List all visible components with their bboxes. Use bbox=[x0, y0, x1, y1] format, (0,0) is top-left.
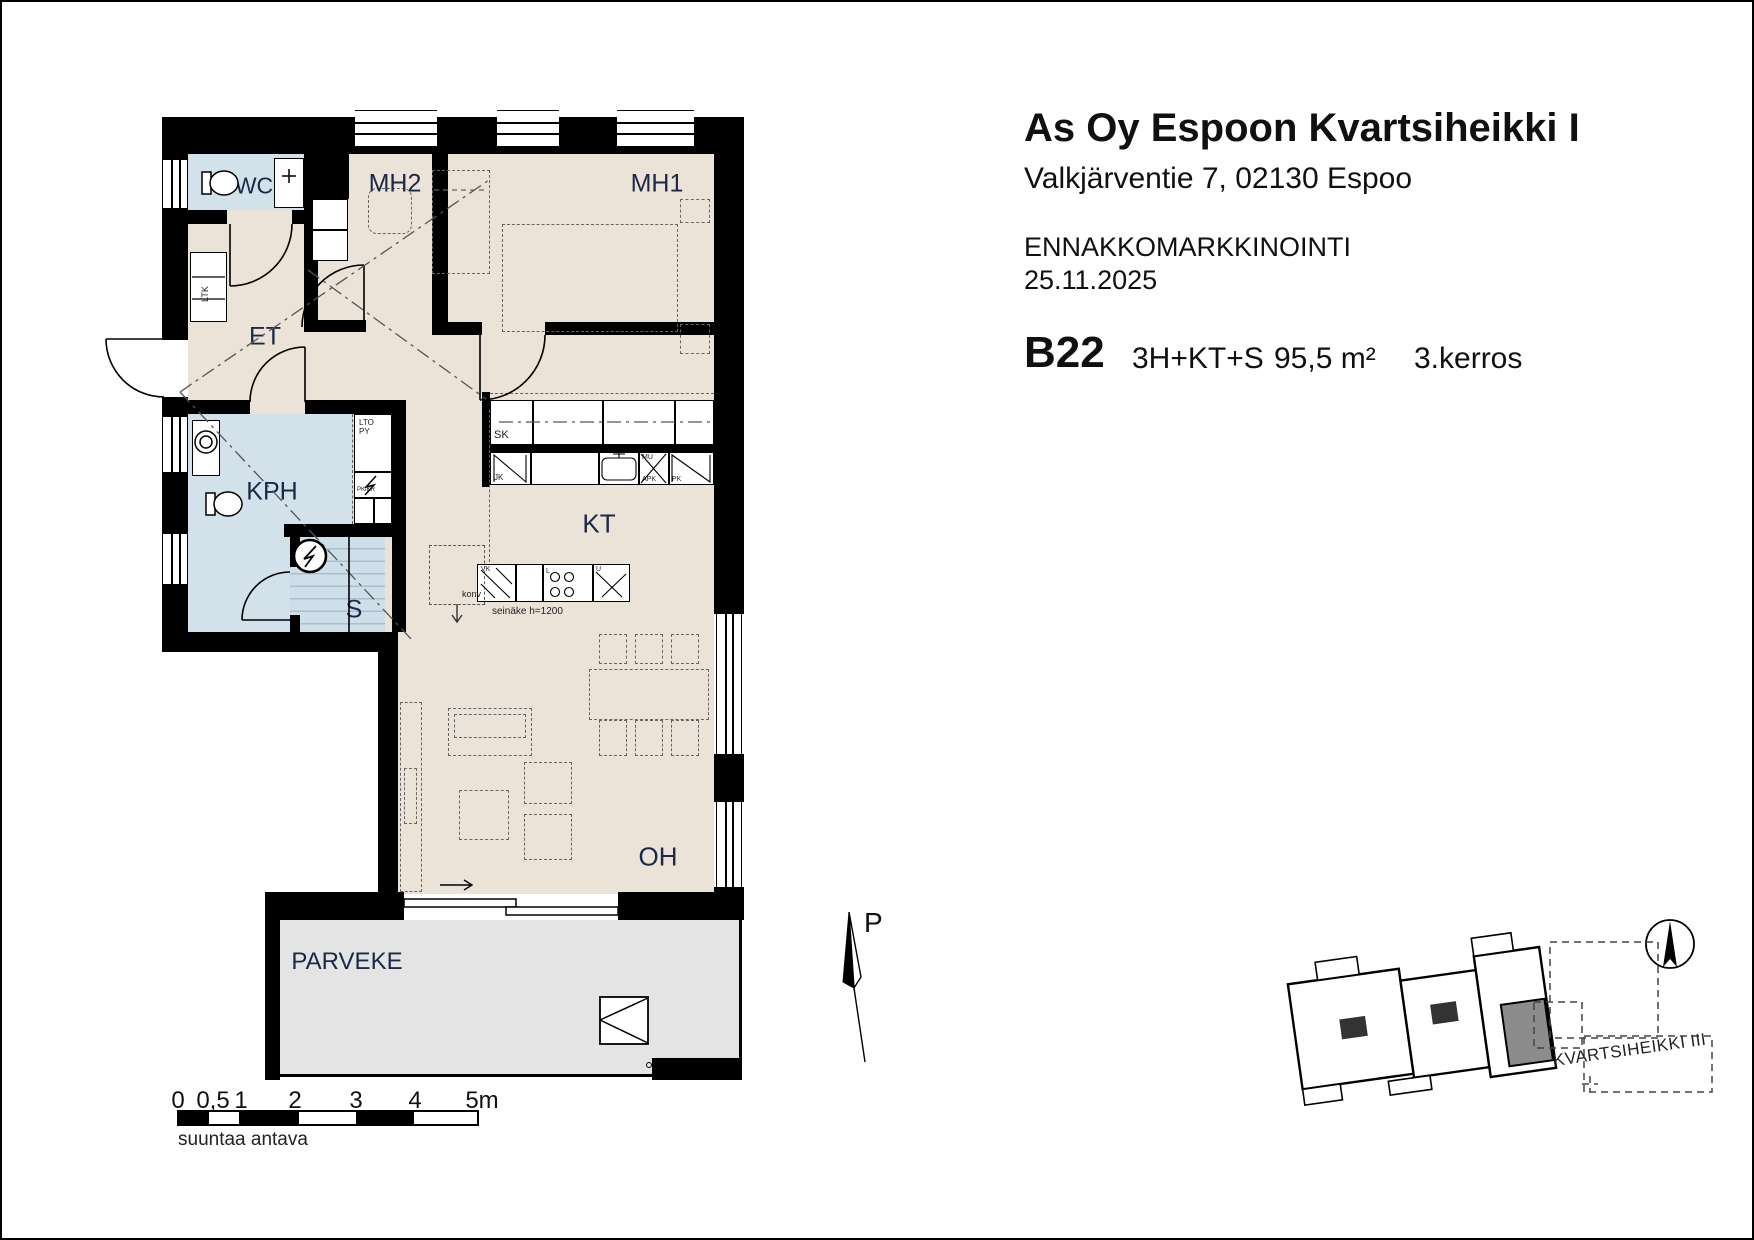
electrical-cabinet bbox=[354, 472, 392, 498]
stair-core bbox=[1430, 1001, 1459, 1024]
room-label-wc: WC bbox=[235, 173, 273, 200]
future-phase-outline bbox=[1534, 942, 1712, 1092]
wall bbox=[290, 537, 300, 567]
island-divider bbox=[542, 564, 544, 602]
furniture-nightstand bbox=[680, 199, 710, 223]
entry-door-opening bbox=[162, 340, 188, 397]
closet bbox=[312, 230, 348, 261]
room-label-mh2: MH2 bbox=[369, 170, 422, 199]
wall bbox=[714, 754, 744, 802]
highlighted-unit bbox=[1501, 999, 1553, 1067]
apk-label: APK bbox=[642, 476, 656, 483]
furniture-chair bbox=[635, 634, 663, 664]
scale-note: suuntaa antava bbox=[178, 1130, 308, 1150]
island-divider bbox=[515, 564, 517, 602]
floor-plan-sheet: As Oy Espoon Kvartsiheikki I Valkjärvent… bbox=[0, 0, 1754, 1240]
stove-label: L bbox=[546, 568, 550, 575]
marketing-phase: ENNAKKOMARKKINOINTI bbox=[1024, 232, 1351, 263]
bathroom-vanity bbox=[192, 420, 220, 476]
room-label-s: S bbox=[346, 596, 363, 625]
window bbox=[617, 110, 694, 147]
building-cluster bbox=[1285, 929, 1557, 1107]
furniture-double-bed bbox=[502, 224, 678, 332]
cabinet-divider bbox=[638, 452, 640, 485]
project-title: As Oy Espoon Kvartsiheikki I bbox=[1024, 106, 1580, 151]
wall bbox=[188, 400, 250, 414]
kitchen-wall-line bbox=[490, 445, 714, 452]
wall bbox=[304, 320, 366, 332]
furniture-coffee-table bbox=[524, 814, 572, 860]
room-label-parveke: PARVEKE bbox=[291, 948, 402, 976]
jk-label: JK bbox=[494, 474, 503, 482]
furniture-bed bbox=[432, 170, 490, 274]
apartment-id: B22 bbox=[1024, 328, 1105, 378]
balcony-floor bbox=[280, 920, 742, 1077]
upper-cabinet-line bbox=[490, 393, 714, 394]
window bbox=[162, 534, 188, 584]
wall bbox=[392, 400, 406, 632]
furniture-tv bbox=[404, 768, 417, 824]
room-boundary-line bbox=[489, 410, 490, 562]
project-address: Valkjärventie 7, 02130 Espoo bbox=[1024, 162, 1412, 196]
wall bbox=[284, 524, 406, 537]
cabinet-divider bbox=[530, 452, 532, 485]
oven-label: U bbox=[596, 566, 601, 573]
wall bbox=[305, 400, 406, 414]
furniture-chair bbox=[599, 634, 627, 664]
room-label-kt: KT bbox=[582, 509, 615, 540]
furniture-dining-table bbox=[589, 669, 709, 720]
wall bbox=[714, 117, 744, 614]
closet-divider bbox=[373, 498, 375, 524]
window bbox=[497, 110, 559, 147]
balcony-edge bbox=[739, 920, 742, 1077]
furniture-chair bbox=[671, 720, 699, 756]
north-label: P bbox=[864, 908, 883, 937]
scale-bar bbox=[177, 1110, 479, 1126]
furniture-sofa-seat bbox=[454, 714, 526, 738]
closet bbox=[312, 199, 348, 230]
site-plan: KVARTSIHEIKKI III bbox=[1282, 914, 1722, 1129]
kitchen-island bbox=[477, 564, 630, 602]
sauna-floor bbox=[290, 537, 385, 632]
pk-label: PK bbox=[672, 476, 681, 483]
room-boundary-line bbox=[352, 414, 353, 524]
appliance-reservation bbox=[429, 545, 485, 605]
shower-floor bbox=[188, 524, 290, 632]
furniture-chair bbox=[635, 720, 663, 756]
mu-label: MU bbox=[642, 454, 653, 461]
sk-label: SK bbox=[494, 430, 509, 442]
apartment-floor: 3.kerros bbox=[1414, 342, 1522, 376]
island-divider bbox=[592, 564, 594, 602]
entry-door-arc bbox=[106, 339, 164, 397]
room-label-mh1: MH1 bbox=[631, 170, 684, 199]
cabinet-divider bbox=[668, 452, 670, 485]
apartment-type: 3H+KT+S bbox=[1132, 342, 1264, 376]
window bbox=[162, 417, 188, 472]
window bbox=[162, 160, 188, 208]
wall bbox=[265, 892, 404, 920]
window bbox=[716, 802, 742, 887]
cabinet-divider bbox=[532, 400, 534, 445]
cabinet-divider bbox=[674, 400, 676, 445]
wall bbox=[290, 615, 300, 632]
wall bbox=[378, 632, 398, 894]
site-plan-label: KVARTSIHEIKKI III bbox=[1552, 1030, 1707, 1070]
wall bbox=[265, 892, 280, 1080]
wall bbox=[188, 210, 227, 224]
seinake-label: seinäke h=1200 bbox=[492, 607, 563, 618]
room-label-kph: KPH bbox=[246, 478, 297, 507]
furniture-chair bbox=[599, 720, 627, 756]
pk-kr-label: PK/KR bbox=[357, 487, 375, 493]
wall bbox=[292, 210, 304, 224]
wc-vanity bbox=[274, 158, 304, 208]
furniture-nightstand bbox=[680, 324, 710, 354]
wall bbox=[652, 1058, 742, 1080]
py-label: PY bbox=[359, 428, 370, 436]
furniture-chair bbox=[671, 634, 699, 664]
wall bbox=[162, 632, 396, 652]
cabinet-divider bbox=[598, 452, 600, 485]
stair-core bbox=[1339, 1016, 1368, 1039]
apartment-area: 95,5 m² bbox=[1274, 342, 1376, 376]
wall bbox=[432, 322, 482, 335]
room-label-et: ET bbox=[249, 323, 281, 352]
wall bbox=[714, 887, 744, 920]
window bbox=[355, 110, 437, 147]
marketing-date: 25.11.2025 bbox=[1024, 265, 1157, 296]
furniture-armchair bbox=[524, 762, 572, 804]
window bbox=[716, 614, 742, 754]
cabinet-divider bbox=[602, 400, 604, 445]
ltk-label: LTK bbox=[201, 286, 210, 302]
compass-icon bbox=[1646, 920, 1694, 968]
furniture-armchair bbox=[459, 790, 509, 840]
room-label-oh: OH bbox=[639, 842, 678, 873]
